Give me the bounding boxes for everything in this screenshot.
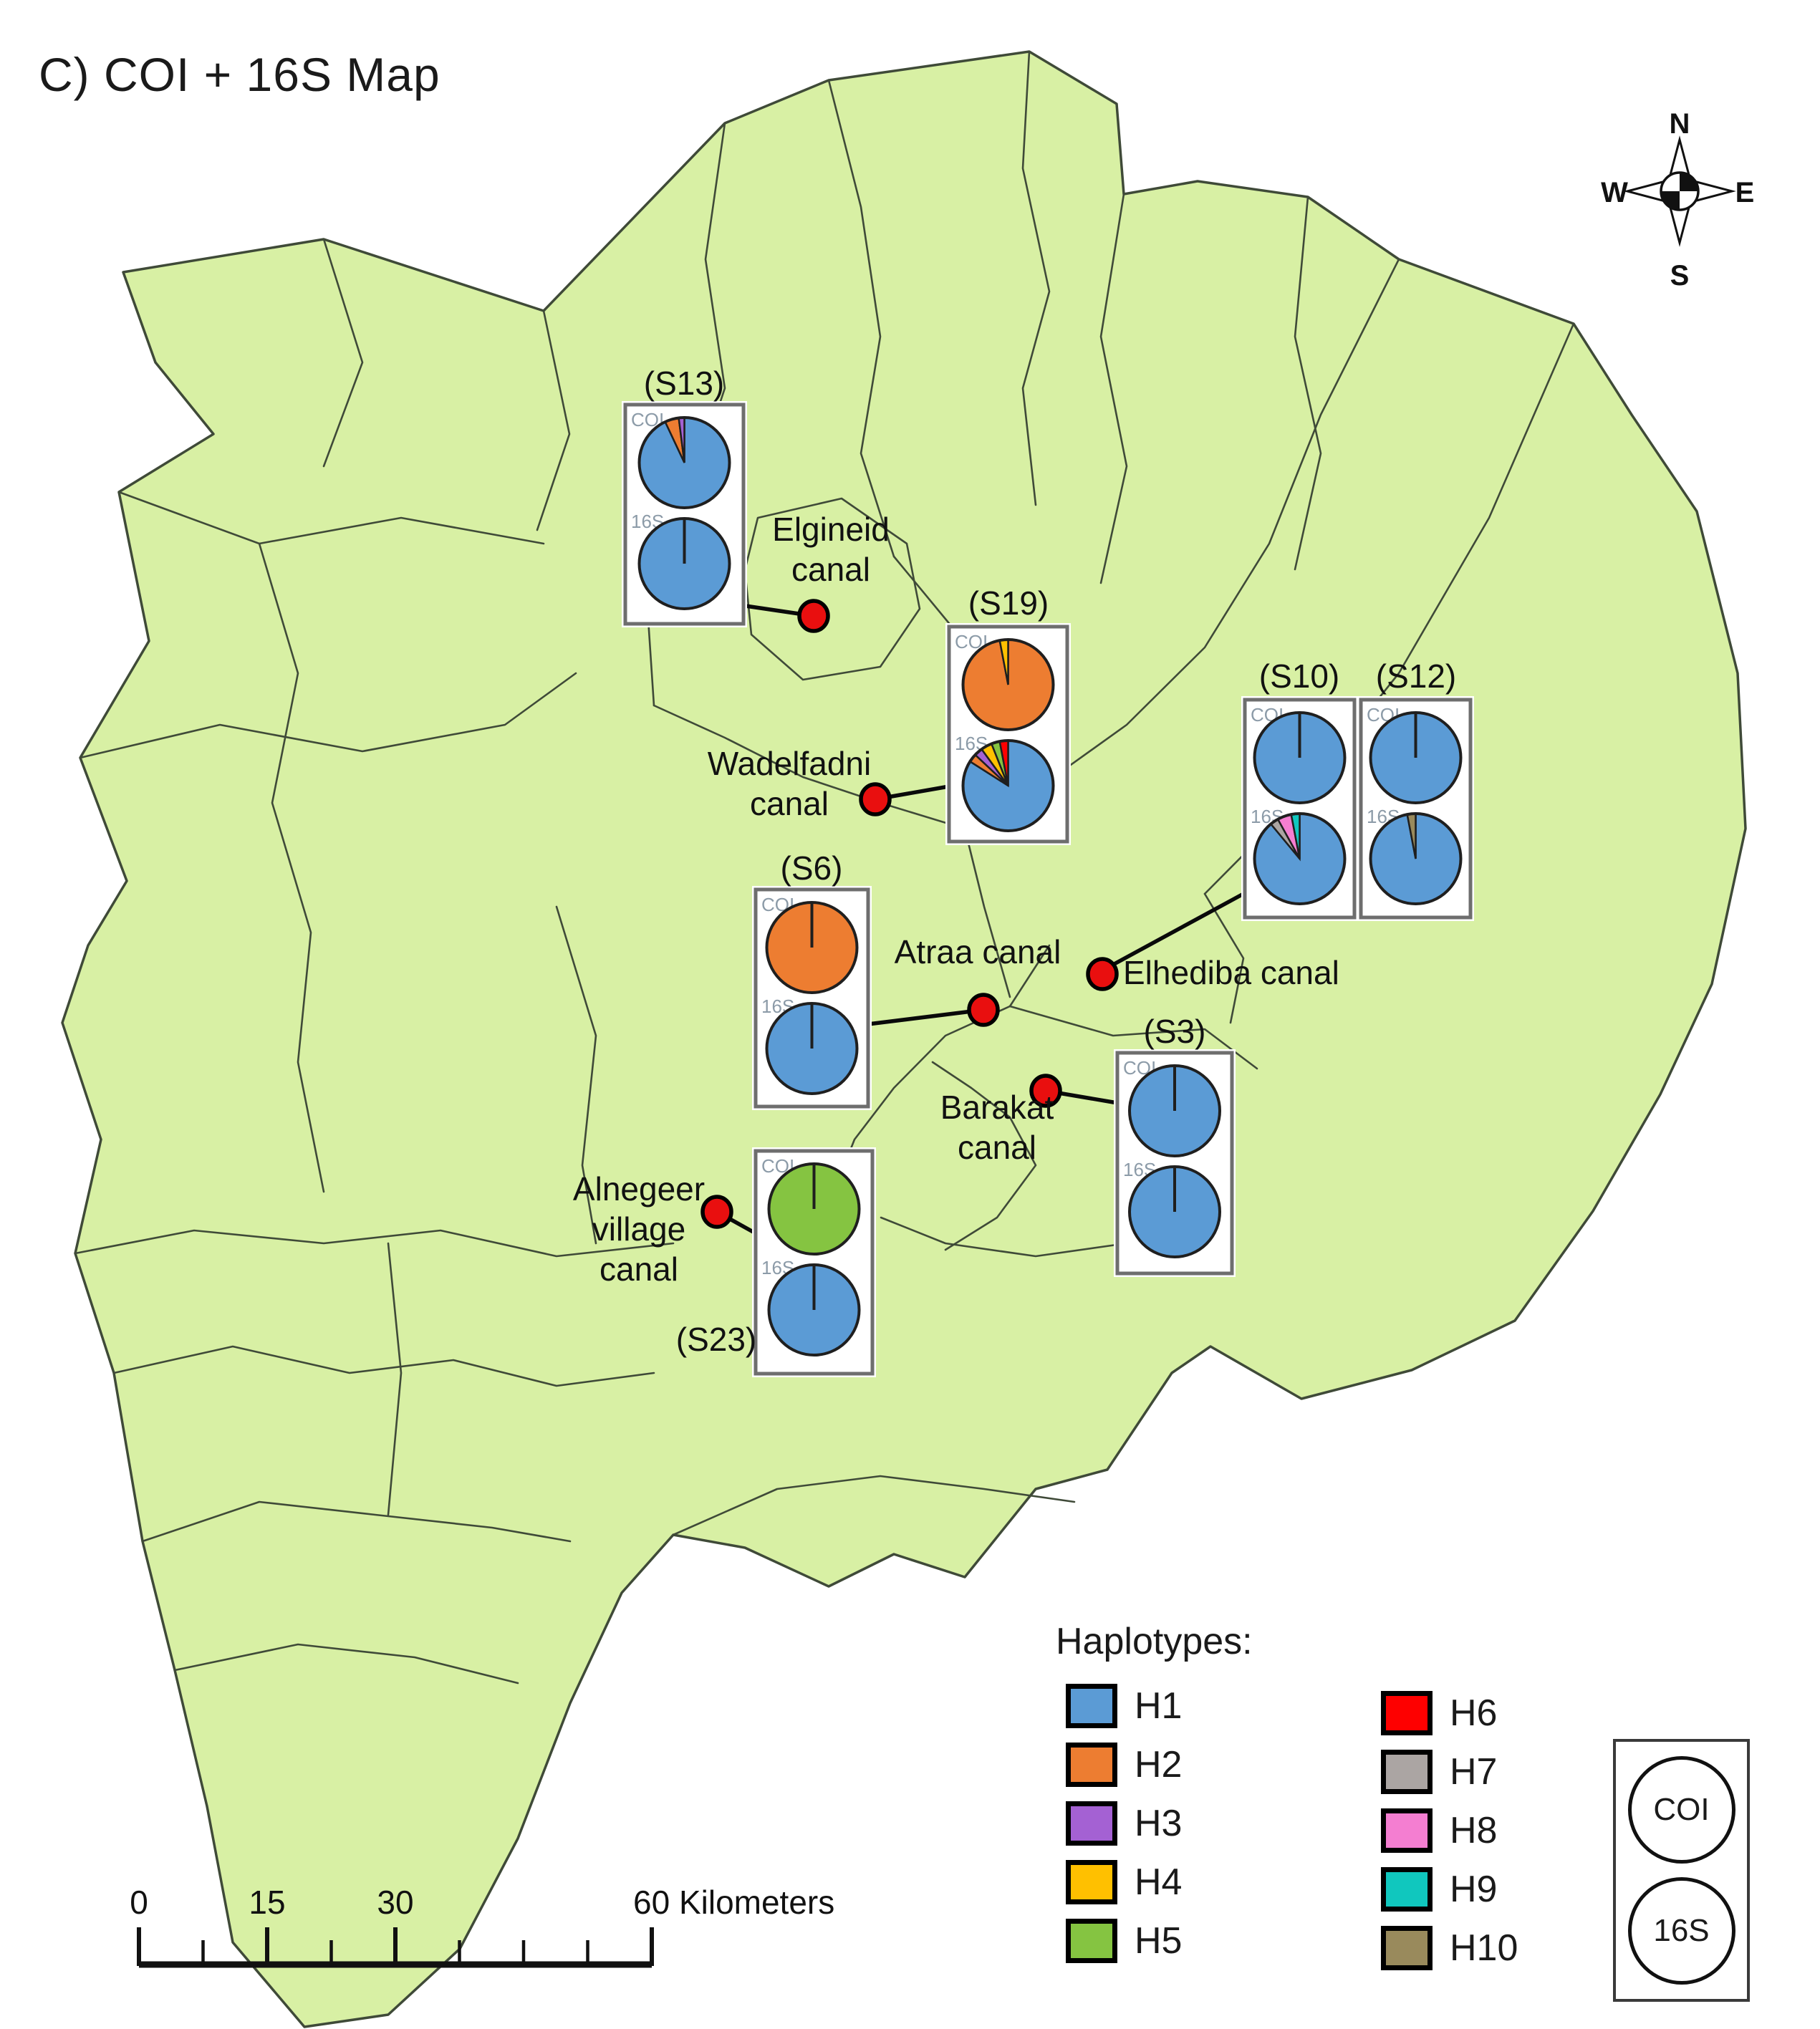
pie-S12-COI bbox=[1371, 713, 1461, 803]
legend-label-H9: H9 bbox=[1450, 1866, 1497, 1912]
canal-label-alnegeer-village-canal-line2: village bbox=[592, 1210, 685, 1248]
legend-swatch-H9 bbox=[1381, 1867, 1433, 1912]
legend-swatch-H1 bbox=[1066, 1684, 1117, 1728]
legend-swatch-H5 bbox=[1066, 1919, 1117, 1963]
legend-label-H1: H1 bbox=[1135, 1683, 1182, 1729]
site-box-S19: COI16S(S19) bbox=[945, 584, 1071, 845]
connector-atraa-canal bbox=[868, 1010, 983, 1024]
site-label-S12: (S12) bbox=[1376, 657, 1456, 695]
legend-column-left: H1H2H3H4H5 bbox=[1066, 1683, 1182, 1977]
scale-bar: 0153060 Kilometers bbox=[130, 1884, 834, 1966]
marker-wadelfadni-canal bbox=[861, 784, 890, 814]
haplotype-legend: Haplotypes: H1H2H3H4H5 H6H7H8H9H10 bbox=[1056, 1620, 1571, 1683]
gene-key-coi-label: COI bbox=[1653, 1792, 1709, 1828]
site-box-S23: COI16S(S23) bbox=[676, 1147, 876, 1377]
legend-label-H3: H3 bbox=[1135, 1801, 1182, 1846]
pie-S13-16S bbox=[640, 519, 730, 609]
gene-key-16s-circle: 16S bbox=[1628, 1877, 1735, 1985]
site-label-S10: (S10) bbox=[1259, 657, 1339, 695]
canal-label-wadelfadni-canal-line2: canal bbox=[750, 785, 829, 822]
site-pie-boxes: COI16S(S13)COI16S(S19)COI16S(S10)COI16S(… bbox=[622, 365, 1474, 1377]
pie-S19-COI bbox=[963, 640, 1053, 730]
site-box-S3: COI16S(S3) bbox=[1114, 1013, 1236, 1277]
scale-label-0km: 0 bbox=[130, 1884, 148, 1921]
legend-swatch-H6 bbox=[1381, 1691, 1433, 1735]
compass-east-point bbox=[1694, 181, 1732, 201]
compass-n-label: N bbox=[1670, 108, 1690, 140]
compass-e-label: E bbox=[1735, 177, 1755, 208]
canal-label-atraa-canal-line1: Atraa canal bbox=[895, 933, 1061, 970]
map-overlay: N S W E COI16S(S13)COI16S(S19)COI16S(S10… bbox=[0, 0, 1820, 2029]
compass-rose: N S W E bbox=[1601, 108, 1754, 291]
legend-item-H9: H9 bbox=[1381, 1866, 1518, 1912]
pie-S6-COI bbox=[767, 902, 857, 993]
legend-label-H2: H2 bbox=[1135, 1742, 1182, 1788]
legend-swatch-H2 bbox=[1066, 1743, 1117, 1787]
pie-S10-COI bbox=[1255, 713, 1345, 803]
site-box-S13: COI16S(S13) bbox=[622, 365, 747, 627]
legend-swatch-H7 bbox=[1381, 1750, 1433, 1794]
canal-label-alnegeer-village-canal-line3: canal bbox=[600, 1250, 678, 1288]
legend-swatch-H10 bbox=[1381, 1926, 1433, 1970]
legend-column-right: H6H7H8H9H10 bbox=[1381, 1690, 1518, 1984]
marker-atraa-canal bbox=[969, 995, 998, 1025]
compass-ne-quadrant bbox=[1680, 173, 1698, 191]
figure-title: C) COI + 16S Map bbox=[39, 47, 440, 102]
legend-title: Haplotypes: bbox=[1056, 1620, 1571, 1663]
legend-label-H6: H6 bbox=[1450, 1690, 1497, 1736]
legend-item-H6: H6 bbox=[1381, 1690, 1518, 1736]
legend-label-H4: H4 bbox=[1135, 1859, 1182, 1905]
pie-S13-COI bbox=[640, 418, 730, 508]
scale-label-30km: 30 bbox=[377, 1884, 413, 1921]
legend-item-H4: H4 bbox=[1066, 1859, 1182, 1905]
pie-S3-COI bbox=[1130, 1066, 1220, 1156]
legend-label-H5: H5 bbox=[1135, 1918, 1182, 1964]
pie-S10-16S bbox=[1255, 814, 1345, 904]
site-box-S12: COI16S(S12) bbox=[1357, 657, 1474, 921]
legend-swatch-H3 bbox=[1066, 1801, 1117, 1846]
legend-item-H8: H8 bbox=[1381, 1808, 1518, 1854]
canal-label-wadelfadni-canal-line1: Wadelfadni bbox=[708, 745, 871, 782]
site-box-S10: COI16S(S10) bbox=[1241, 657, 1358, 921]
site-label-S6: (S6) bbox=[781, 849, 843, 887]
gene-key-16s-label: 16S bbox=[1653, 1913, 1709, 1949]
pie-S19-16S bbox=[963, 741, 1053, 831]
pie-S6-16S bbox=[767, 1003, 857, 1094]
marker-elhediba-canal bbox=[1088, 959, 1117, 989]
legend-swatch-H4 bbox=[1066, 1860, 1117, 1904]
legend-label-H8: H8 bbox=[1450, 1808, 1497, 1854]
scale-label-15km: 15 bbox=[249, 1884, 285, 1921]
canal-label-barakat-canal-line2: canal bbox=[958, 1129, 1036, 1166]
pie-S23-16S bbox=[769, 1265, 860, 1355]
site-label-S23: (S23) bbox=[676, 1321, 756, 1358]
pie-S3-16S bbox=[1130, 1167, 1220, 1257]
legend-label-H7: H7 bbox=[1450, 1749, 1497, 1795]
figure-canvas: N S W E COI16S(S13)COI16S(S19)COI16S(S10… bbox=[0, 0, 1820, 2029]
gene-key-box: COI 16S bbox=[1613, 1739, 1750, 2002]
compass-w-label: W bbox=[1601, 177, 1628, 208]
canal-label-elhediba-canal-line1: Elhediba canal bbox=[1123, 954, 1339, 991]
site-label-S13: (S13) bbox=[644, 365, 724, 402]
site-box-S6: COI16S(S6) bbox=[752, 849, 872, 1110]
canal-label-elgineid-canal-line1: Elgineid bbox=[772, 511, 890, 548]
site-label-S3: (S3) bbox=[1144, 1013, 1206, 1050]
legend-item-H7: H7 bbox=[1381, 1749, 1518, 1795]
marker-elgineid-canal bbox=[799, 601, 828, 631]
compass-s-label: S bbox=[1670, 260, 1690, 291]
legend-swatch-H8 bbox=[1381, 1808, 1433, 1853]
legend-item-H5: H5 bbox=[1066, 1918, 1182, 1964]
gene-key-coi-circle: COI bbox=[1628, 1756, 1735, 1864]
canal-label-elgineid-canal-line2: canal bbox=[791, 551, 870, 588]
legend-label-H10: H10 bbox=[1450, 1925, 1518, 1971]
compass-west-point bbox=[1627, 181, 1665, 201]
legend-item-H2: H2 bbox=[1066, 1742, 1182, 1788]
legend-item-H3: H3 bbox=[1066, 1801, 1182, 1846]
legend-item-H1: H1 bbox=[1066, 1683, 1182, 1729]
legend-item-H10: H10 bbox=[1381, 1925, 1518, 1971]
compass-sw-quadrant bbox=[1661, 191, 1680, 210]
marker-alnegeer-village-canal bbox=[703, 1197, 731, 1227]
scale-label-60km: 60 Kilometers bbox=[633, 1884, 834, 1921]
pie-S23-COI bbox=[769, 1164, 860, 1254]
site-label-S19: (S19) bbox=[968, 584, 1049, 622]
pie-S12-16S bbox=[1370, 814, 1460, 904]
canal-label-alnegeer-village-canal-line1: Alnegeer bbox=[573, 1170, 705, 1208]
canal-label-barakat-canal-line1: Barakat bbox=[940, 1089, 1054, 1126]
